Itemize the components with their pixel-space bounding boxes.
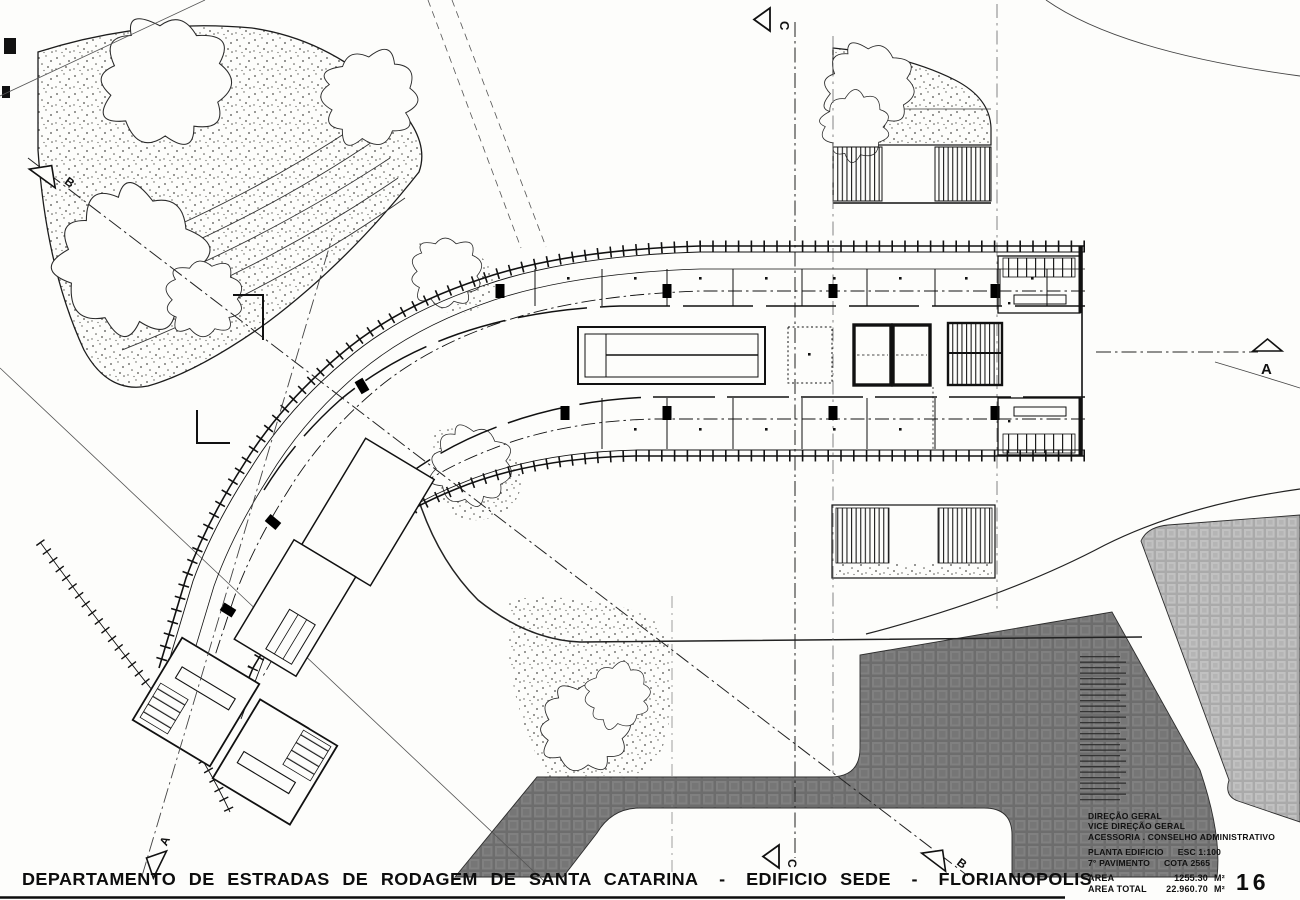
- section-cut-lines: [28, 158, 968, 876]
- planting-patches: [412, 238, 670, 779]
- office-partitions-upper: [535, 269, 1047, 306]
- sheet-number: 16: [1236, 869, 1270, 896]
- road-edge-curve: [1046, 0, 1300, 76]
- floor-plan-sheet: C B A A C B DEPARTAMENTO DE ESTRADAS DE …: [0, 0, 1300, 900]
- legend-floor: 7° PAVIMENTO: [1088, 858, 1150, 868]
- office-partitions-lower: [602, 398, 935, 449]
- edge-reference-mark: [4, 38, 16, 54]
- plan-drawing: C B A A C B: [0, 0, 1300, 900]
- title-project: DEPARTAMENTO DE ESTRADAS DE RODAGEM DE S…: [22, 869, 699, 889]
- landscape-upper-right: [809, 32, 991, 203]
- grid-line: [428, 0, 521, 248]
- landscape-upper-left: [2, 4, 431, 387]
- pergola-block-midright: [832, 505, 995, 578]
- area-total-unit: M²: [1214, 884, 1225, 895]
- title-city: FLORIANOPOLIS: [939, 869, 1093, 889]
- svg-text:C: C: [785, 859, 799, 868]
- stair-core: [948, 323, 1002, 385]
- toilets-upper-east: [998, 246, 1080, 313]
- legend-org-line: VICE DIREÇÃO GERAL: [1088, 821, 1298, 831]
- terrace-wall: [197, 410, 230, 443]
- toilets-lower-east: [998, 398, 1080, 456]
- sheet-title: DEPARTAMENTO DE ESTRADAS DE RODAGEM DE S…: [22, 869, 1092, 890]
- legend-org-line: DIREÇÃO GERAL: [1088, 811, 1298, 821]
- legend-scale: ESC 1:100: [1178, 847, 1221, 857]
- legend-cota: COTA 2565: [1164, 858, 1210, 868]
- elevator-shafts: [854, 325, 933, 450]
- area-unit: M²: [1214, 873, 1225, 884]
- area-total-label: AREA TOTAL: [1088, 884, 1146, 895]
- auditorium: [578, 327, 765, 384]
- section-marker-right-a: A: [1253, 339, 1282, 378]
- area-total-value: 22.960.70: [1146, 884, 1208, 895]
- svg-text:A: A: [157, 834, 174, 848]
- road-edge-curve: [1215, 362, 1300, 388]
- svg-text:C: C: [777, 21, 792, 31]
- svg-text:A: A: [1261, 361, 1272, 378]
- section-marker-bottom-c: C: [763, 845, 799, 868]
- title-building: EDIFICIO SEDE: [746, 869, 891, 889]
- title-separator: -: [912, 869, 918, 889]
- room-schedule-list: [1046, 656, 1126, 804]
- area-value: 1255.30: [1146, 873, 1208, 884]
- legend-org-line: ACESSORIA . CONSELHO ADMINISTRATIVO: [1088, 832, 1298, 842]
- grid-line: [452, 0, 546, 247]
- pergola-hatch: [833, 147, 882, 201]
- section-line-b: [28, 158, 968, 876]
- legend-plan-label: PLANTA EDIFICIO: [1088, 847, 1164, 857]
- title-separator: -: [719, 869, 725, 889]
- section-marker-top-c: C: [754, 8, 792, 31]
- pergola-hatch: [935, 147, 991, 201]
- area-label: AREA: [1088, 873, 1146, 884]
